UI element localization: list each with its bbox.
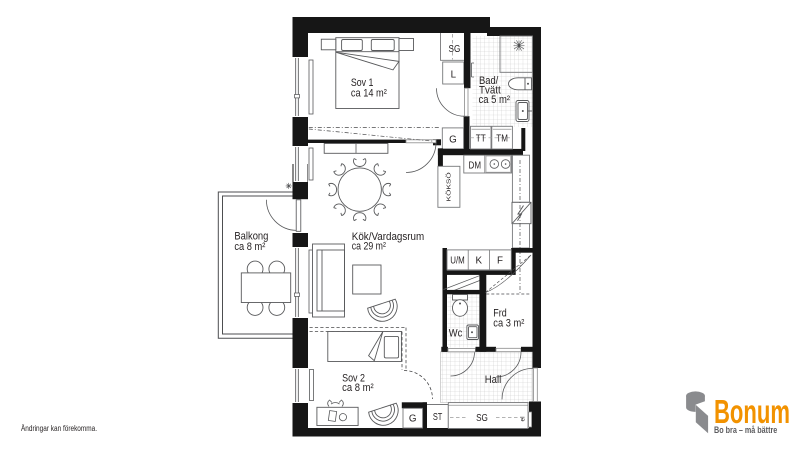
- svg-text:ca 5 m²: ca 5 m²: [479, 94, 511, 106]
- svg-text:SG: SG: [476, 413, 488, 424]
- svg-text:ca 3 m²: ca 3 m²: [493, 318, 524, 330]
- svg-text:F: F: [497, 256, 503, 267]
- svg-text:ca 8 m²: ca 8 m²: [342, 382, 374, 394]
- svg-text:Hall: Hall: [485, 374, 501, 386]
- svg-text:el: el: [520, 416, 527, 422]
- svg-text:TM: TM: [496, 134, 508, 145]
- svg-text:ca 8 m²: ca 8 m²: [234, 241, 265, 253]
- svg-text:ca 14 m²: ca 14 m²: [351, 87, 387, 99]
- svg-text:SG: SG: [449, 44, 461, 55]
- svg-text:L: L: [451, 70, 457, 81]
- svg-text:G: G: [409, 414, 417, 425]
- svg-text:TT: TT: [476, 134, 486, 145]
- svg-text:Wc: Wc: [449, 327, 463, 339]
- svg-text:ca 29 m²: ca 29 m²: [352, 241, 386, 253]
- svg-text:ST: ST: [433, 412, 443, 423]
- svg-text:K: K: [476, 256, 483, 267]
- svg-text:KÖKSÖ: KÖKSÖ: [446, 172, 453, 202]
- svg-text:G: G: [449, 135, 457, 146]
- svg-text:DM: DM: [469, 161, 482, 172]
- svg-text:U/M: U/M: [450, 256, 465, 267]
- svg-text:Ändringar kan förekomma.: Ändringar kan förekomma.: [21, 424, 97, 433]
- svg-text:Bo bra – må bättre: Bo bra – må bättre: [714, 425, 777, 435]
